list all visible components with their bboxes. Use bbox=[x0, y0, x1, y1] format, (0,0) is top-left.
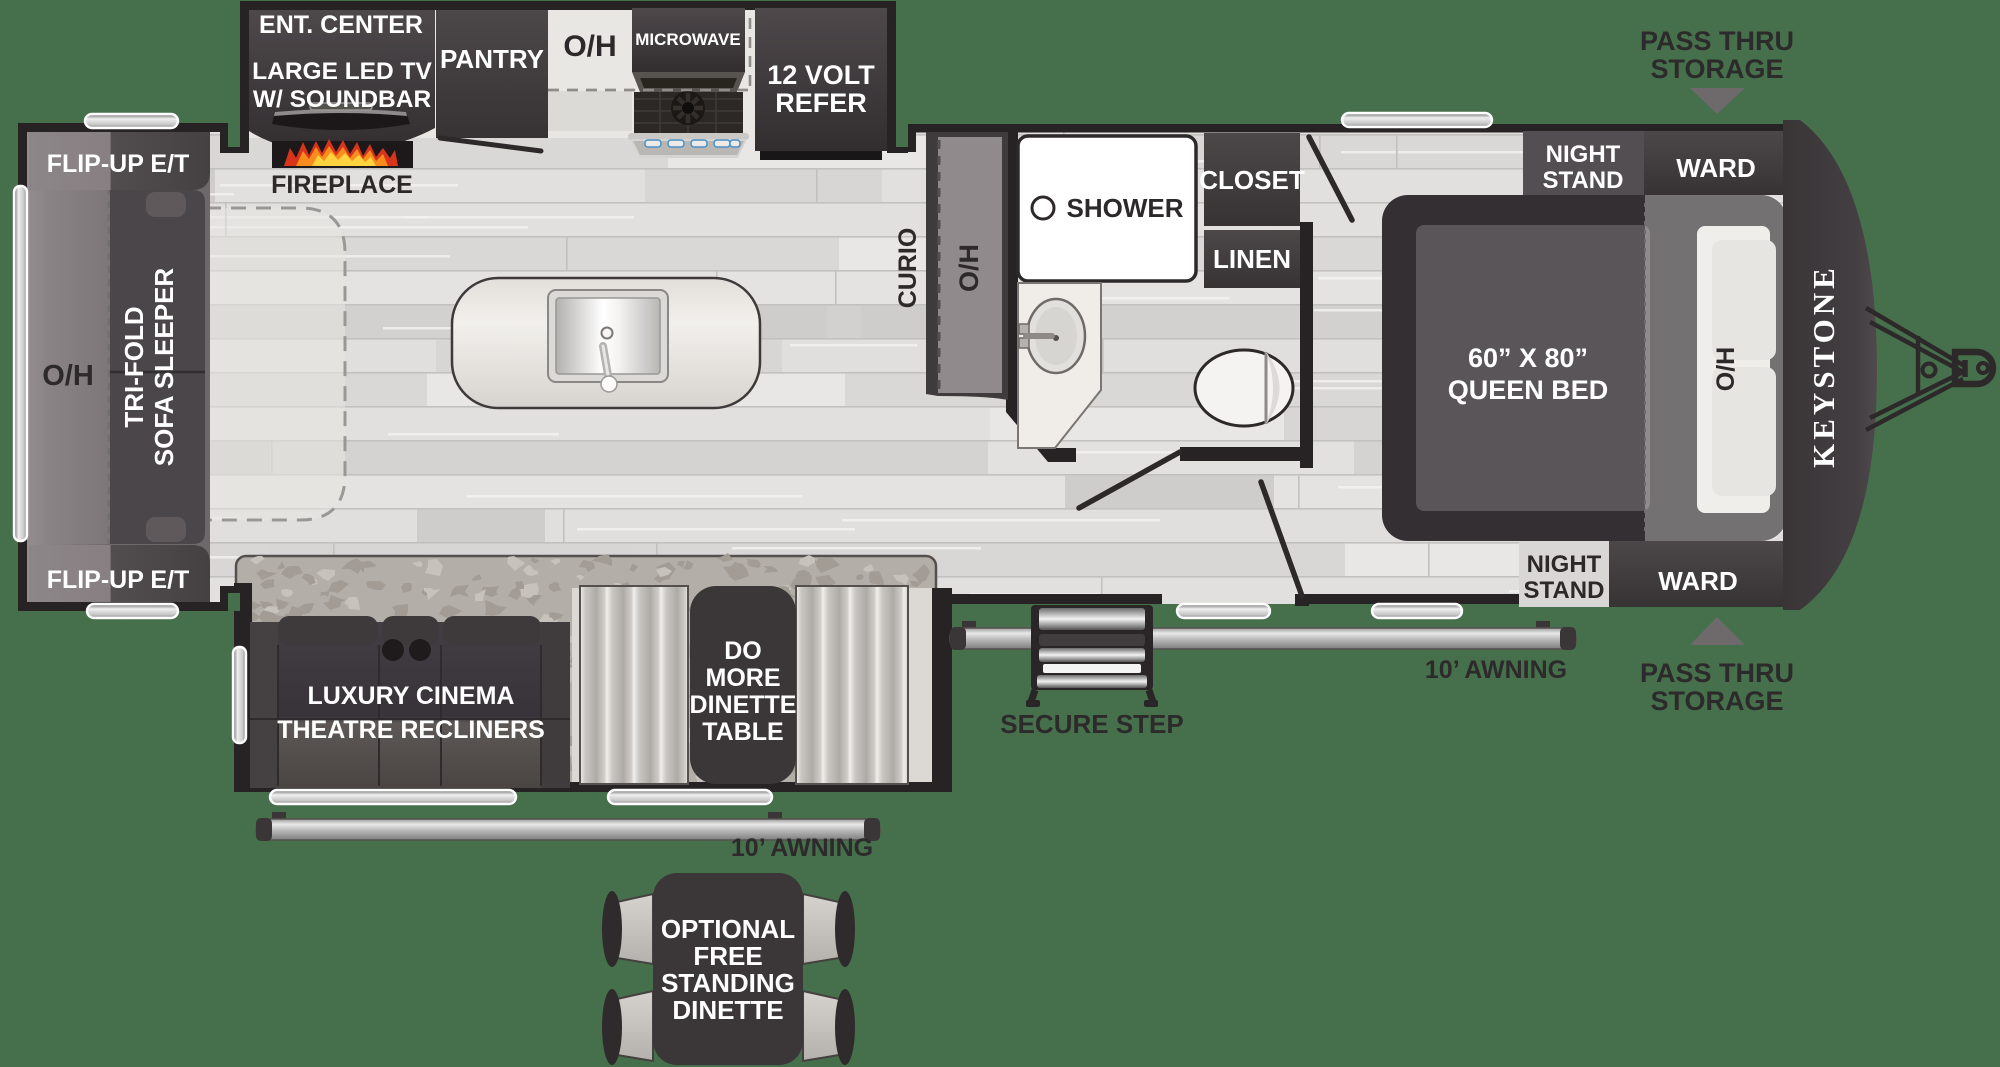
svg-text:TABLE: TABLE bbox=[702, 718, 783, 746]
svg-text:MORE: MORE bbox=[706, 664, 781, 692]
svg-text:LINEN: LINEN bbox=[1213, 244, 1291, 274]
svg-text:THEATRE RECLINERS: THEATRE RECLINERS bbox=[277, 716, 545, 744]
svg-text:FLIP-UP E/T: FLIP-UP E/T bbox=[47, 566, 190, 594]
svg-text:DINETTE: DINETTE bbox=[672, 995, 783, 1025]
svg-text:O/H: O/H bbox=[1712, 347, 1740, 391]
svg-text:STORAGE: STORAGE bbox=[1650, 686, 1783, 716]
svg-text:12 VOLT: 12 VOLT bbox=[767, 60, 875, 90]
svg-text:TRI-FOLD: TRI-FOLD bbox=[119, 306, 149, 427]
svg-text:KEYSTONE: KEYSTONE bbox=[1806, 264, 1841, 468]
svg-text:FLIP-UP E/T: FLIP-UP E/T bbox=[47, 150, 190, 178]
svg-text:WARD: WARD bbox=[1676, 153, 1755, 183]
svg-text:QUEEN BED: QUEEN BED bbox=[1448, 375, 1609, 405]
svg-text:PASS THRU: PASS THRU bbox=[1640, 658, 1794, 688]
svg-text:PANTRY: PANTRY bbox=[440, 44, 544, 74]
svg-text:STORAGE: STORAGE bbox=[1650, 54, 1783, 84]
svg-text:SECURE STEP: SECURE STEP bbox=[1000, 709, 1184, 739]
svg-text:STAND: STAND bbox=[1543, 167, 1624, 194]
svg-text:NIGHT: NIGHT bbox=[1527, 551, 1602, 578]
svg-text:10’ AWNING: 10’ AWNING bbox=[1425, 656, 1567, 684]
svg-text:SOFA SLEEPER: SOFA SLEEPER bbox=[149, 268, 179, 467]
svg-text:LUXURY CINEMA: LUXURY CINEMA bbox=[308, 682, 515, 710]
svg-text:O/H: O/H bbox=[563, 30, 616, 63]
svg-text:ENT. CENTER: ENT. CENTER bbox=[259, 11, 423, 39]
svg-text:SHOWER: SHOWER bbox=[1067, 193, 1184, 223]
svg-text:CLOSET: CLOSET bbox=[1199, 165, 1305, 195]
svg-text:LARGE LED TV: LARGE LED TV bbox=[252, 58, 432, 85]
svg-text:OPTIONAL: OPTIONAL bbox=[661, 914, 795, 944]
svg-text:W/ SOUNDBAR: W/ SOUNDBAR bbox=[253, 86, 432, 113]
svg-text:PASS THRU: PASS THRU bbox=[1640, 26, 1794, 56]
svg-text:MICROWAVE: MICROWAVE bbox=[635, 30, 740, 49]
svg-text:CURIO: CURIO bbox=[894, 228, 922, 309]
svg-text:FREE: FREE bbox=[693, 941, 762, 971]
svg-text:DINETTE: DINETTE bbox=[690, 691, 797, 719]
svg-text:FIREPLACE: FIREPLACE bbox=[271, 171, 413, 199]
svg-text:STAND: STAND bbox=[1524, 577, 1605, 604]
svg-text:NIGHT: NIGHT bbox=[1546, 141, 1621, 168]
svg-text:STANDING: STANDING bbox=[661, 968, 795, 998]
svg-text:O/H: O/H bbox=[954, 244, 984, 292]
svg-text:60” X 80”: 60” X 80” bbox=[1468, 343, 1588, 373]
svg-text:DO: DO bbox=[724, 637, 762, 665]
svg-text:WARD: WARD bbox=[1658, 566, 1737, 596]
svg-text:O/H: O/H bbox=[42, 360, 94, 392]
svg-text:10’ AWNING: 10’ AWNING bbox=[731, 834, 873, 862]
svg-text:REFER: REFER bbox=[775, 88, 867, 118]
